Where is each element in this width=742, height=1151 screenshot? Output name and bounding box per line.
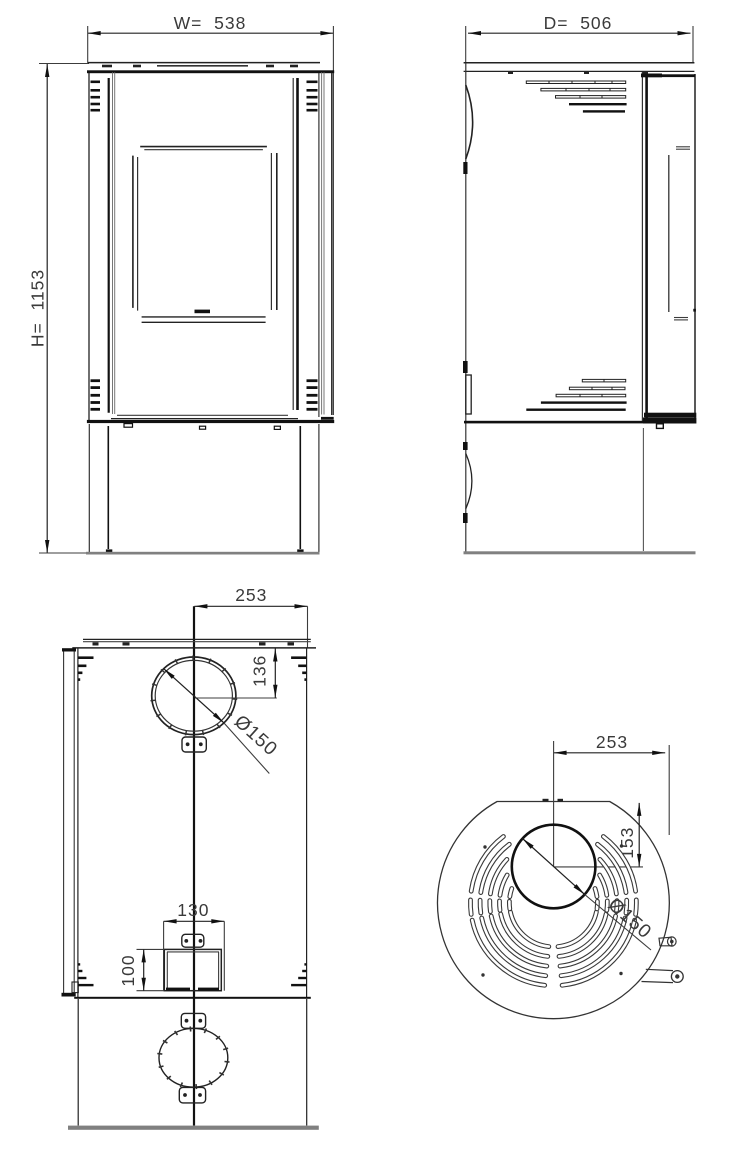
svg-text:130: 130 [177, 900, 209, 920]
svg-text:136: 136 [250, 655, 270, 687]
svg-text:D= 506: D= 506 [544, 13, 613, 33]
svg-text:253: 253 [596, 732, 628, 752]
svg-text:100: 100 [118, 954, 138, 986]
svg-text:H= 1153: H= 1153 [28, 269, 48, 347]
svg-text:253: 253 [235, 585, 267, 605]
svg-text:W= 538: W= 538 [174, 13, 247, 33]
